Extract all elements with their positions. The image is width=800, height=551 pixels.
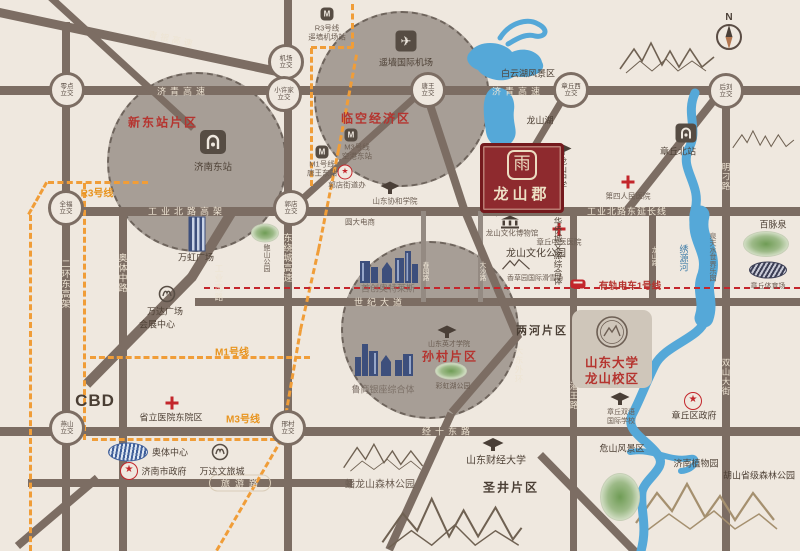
- road-label-raocheng: 东绕城高速: [282, 233, 295, 283]
- label-jinan-east-station: 济南东站: [194, 159, 232, 173]
- aoti-center-icon: [108, 443, 148, 462]
- interchange-suffix: 立交: [61, 428, 74, 435]
- label-zhangqiu-stadium: 章丘体育场: [751, 281, 786, 291]
- label-baimaiquan: 百脉泉: [759, 218, 786, 231]
- interchange-suffix: 立交: [285, 208, 298, 215]
- interchange-name: 燕山: [61, 421, 74, 428]
- wanda-cultural-icon: [211, 443, 229, 461]
- zhangqiu-stadium-icon: [749, 262, 787, 279]
- label-yuanda-ec: 圆大电商: [345, 217, 375, 228]
- baimaiquan-pond-icon: [743, 231, 789, 257]
- metro-station-icon-r3: M: [321, 8, 334, 21]
- zhangqiu-gov-star-icon: ★: [684, 392, 702, 410]
- svg-text:N: N: [725, 12, 732, 23]
- interchange-name: 唐王: [422, 83, 435, 90]
- road-label-erhuan: 二环东高架: [60, 259, 73, 309]
- interchange-suffix: 立交: [61, 90, 74, 97]
- graduation-cap-icon-yingcai: [438, 326, 457, 339]
- road-label-shuangshan: 双山大街: [720, 358, 732, 396]
- interchange-name: 邢村: [282, 421, 295, 428]
- location-map: 青银高速 济青高速 济青高速 工业北路高架 工业北路东延长线 世纪大道 经十东路…: [0, 0, 800, 551]
- logo-name: 龙山郡: [493, 183, 550, 204]
- road-label-dadong: 大东外环: [513, 346, 525, 384]
- road-label-jingshi-east: 经十东路: [422, 425, 474, 438]
- hospital-cross-icon: [166, 397, 179, 410]
- label-airport: 遥墙国际机场: [379, 56, 433, 69]
- graduation-cap-icon-xiehe: [381, 182, 400, 195]
- metro-station-icon-m1: M: [316, 146, 329, 159]
- interchange-suffix: 立交: [278, 94, 291, 101]
- baoshan-pond-icon: [251, 224, 279, 243]
- interchange-houliu: 后刘立交: [708, 73, 744, 109]
- label-huaqiaocheng: 华侨城文旅综合体: [552, 217, 564, 285]
- district-label-linkong: 临空经济区: [341, 110, 411, 127]
- interchange-suffix: 立交: [60, 208, 73, 215]
- road-label-gongye-south: 工业南路: [213, 264, 225, 302]
- university-seal-icon: [595, 315, 629, 349]
- metro-label-m1: M1号线: [215, 344, 249, 359]
- interchange-name: 机场: [280, 55, 293, 62]
- metro-line-m1: [90, 356, 310, 359]
- area-label-lianghe: 两河片区: [516, 322, 568, 338]
- road-label-jiqing-east: 济青高速: [492, 85, 544, 98]
- interchange-guodian: 郭店立交: [273, 190, 309, 226]
- interchange-zhangqiuxi: 章丘西立交: [553, 72, 589, 108]
- label-weishan-scenic: 危山风景区: [599, 442, 644, 455]
- label-wanda-cultural-city: 万达文旅城: [199, 465, 244, 478]
- metro-line-m3: [92, 438, 285, 441]
- label-shengli-hospital: 省立医院东院区: [139, 411, 202, 424]
- label-wanda-plaza: 万达广场: [147, 305, 183, 318]
- interchange-quanfu: 全福立交: [48, 190, 84, 226]
- area-label-cbd: CBD: [75, 391, 115, 411]
- interchange-suffix: 立交: [720, 91, 733, 98]
- interchange-jichang: 机场立交: [268, 44, 304, 80]
- interchange-name: 零点: [61, 83, 74, 90]
- graduation-cap-icon-bilingual: [611, 393, 630, 406]
- weishan-hill-icon: [600, 473, 640, 521]
- label-zhangqiu-north-station: 章丘北站: [660, 145, 696, 158]
- label-renmin-hospital: 第四人民医院: [606, 191, 651, 202]
- interchange-suffix: 立交: [422, 90, 435, 97]
- label-exhibition-center: 会展中心: [139, 318, 175, 331]
- district-label-xindongzhan: 新东站片区: [128, 114, 198, 131]
- road-label-longshan-road: 龙山路: [648, 246, 658, 266]
- label-panlongshan-park: 蟠龙山森林公园: [345, 476, 415, 491]
- metro-line-r3-airport-v2: [351, 4, 354, 48]
- m3-station-name: 空港东站: [342, 151, 372, 162]
- baiyun-stream-shape: [500, 21, 545, 44]
- airport-icon: ✈: [396, 31, 417, 52]
- area-label-shengjing: 圣井片区: [483, 479, 539, 496]
- metro-line-west-vertical: [29, 215, 32, 551]
- road-label-mingdiao: 明刁路: [720, 163, 732, 192]
- road-label-gongyebei-ext: 工业北路东延长线: [587, 205, 667, 218]
- interchange-yanshan: 燕山立交: [49, 410, 85, 446]
- label-quantian-waterpark: 泉天水世界乐园: [707, 233, 717, 282]
- road-label-aoti: 奥体中路: [117, 253, 130, 293]
- label-lushang-complex: 鲁商银座综合体: [351, 383, 414, 396]
- label-jinan-government: 济南市政府: [141, 465, 186, 478]
- m1-station-name: 唐王东站: [307, 168, 337, 179]
- road-label-gongyebei-viaduct: 工业北路高架: [148, 205, 226, 218]
- label-guodian-office: 郭店街道办: [328, 180, 366, 191]
- hospital-cross-icon-renmin: [622, 176, 635, 189]
- label-baoshan-park: 鲍山公园: [261, 244, 271, 272]
- label-botanical-garden: 济南植物园: [673, 457, 718, 470]
- road-label-shiji: 世纪大道: [354, 296, 406, 309]
- road-label-chunyuan: 春园路: [419, 261, 429, 281]
- label-baiyun-lake: 白云湖风景区: [501, 67, 555, 80]
- guodian-star-icon: ★: [338, 165, 353, 180]
- road-label-jiqing-west: 济青高速: [157, 85, 209, 98]
- r3-station-name: 遥墙机场站: [308, 32, 346, 43]
- wanhong-building-icon: [189, 217, 206, 252]
- interchange-name: 郭店: [285, 201, 298, 208]
- label-hushan-forest: 胡山省级森林公园: [723, 469, 795, 482]
- lushang-skyline-icon: [351, 342, 417, 378]
- label-longshan-lake: 龙山湖: [526, 114, 553, 127]
- interchange-suffix: 立交: [280, 62, 293, 69]
- interchange-name: 小许家: [274, 87, 294, 94]
- interchange-lingdian: 零点立交: [49, 72, 85, 108]
- tram-line-1: [204, 287, 800, 289]
- label-caijing-university: 山东财经大学: [466, 452, 526, 467]
- compass-icon: N: [712, 10, 746, 54]
- label-xiehe-college: 山东协和学院: [373, 196, 418, 207]
- interchange-xiaoxujia: 小许家立交: [266, 76, 302, 112]
- label-wanhong-plaza: 万虹广场: [178, 251, 214, 264]
- interchange-name: 后刘: [720, 84, 733, 91]
- metro-station-icon-m3: M: [345, 129, 358, 142]
- label-longshan-museum: 龙山文化博物馆: [486, 228, 539, 239]
- longshanjun-logo: 雨 龙山郡: [480, 143, 564, 213]
- tram-line-label: 有轨电车1号线: [599, 278, 661, 292]
- label-caihong-park: 彩虹湖公园: [436, 381, 471, 391]
- sdu-label-line2: 龙山校区: [585, 368, 639, 387]
- tram-icon: [571, 280, 586, 289]
- label-xiuyuan-river: 绣源河: [678, 245, 691, 272]
- interchange-suffix: 立交: [565, 90, 578, 97]
- caihong-lake-icon: [435, 363, 467, 380]
- label-zq-bilingual-2: 国际学校: [607, 416, 635, 426]
- logo-seal-icon: 雨: [507, 150, 537, 180]
- interchange-name: 全福: [60, 201, 73, 208]
- metro-line-r3-airport-h: [311, 46, 353, 49]
- label-aoti-center: 奥体中心: [152, 446, 188, 459]
- interchange-tangwang: 唐王立交: [410, 72, 446, 108]
- government-star-icon: ★: [120, 462, 138, 480]
- wanda-plaza-icon: [158, 285, 176, 303]
- sdu-longshan-campus-card: 山东大学 龙山校区: [572, 310, 652, 388]
- interchange-xingcun: 邢村立交: [270, 410, 306, 446]
- train-station-icon-jinandong: [200, 130, 226, 154]
- label-shouchuang-outlets: 首创奥特莱斯: [361, 282, 415, 295]
- shouchuang-skyline-icon: [358, 249, 420, 285]
- train-station-icon-zhangqiubei: [676, 124, 697, 143]
- metro-label-m3: M3号线: [226, 411, 260, 426]
- label-zhangqiu-government: 章丘区政府: [671, 409, 716, 422]
- interchange-name: 章丘西: [561, 83, 581, 90]
- district-label-suncun: 孙村片区: [422, 348, 478, 365]
- graduation-cap-icon-caijing: [483, 438, 504, 452]
- road-label-dasha: 大沙路: [476, 261, 486, 281]
- metro-label-r3: R3号线: [81, 185, 114, 200]
- interchange-suffix: 立交: [282, 428, 295, 435]
